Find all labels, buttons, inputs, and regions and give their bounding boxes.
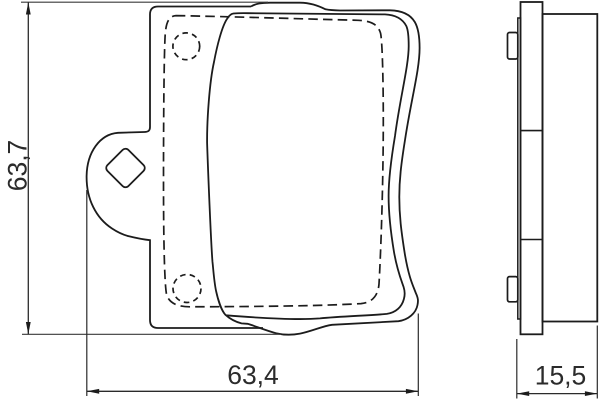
svg-text:15,5: 15,5	[535, 361, 587, 391]
svg-text:63,4: 63,4	[227, 360, 279, 390]
svg-text:63,7: 63,7	[3, 140, 33, 192]
